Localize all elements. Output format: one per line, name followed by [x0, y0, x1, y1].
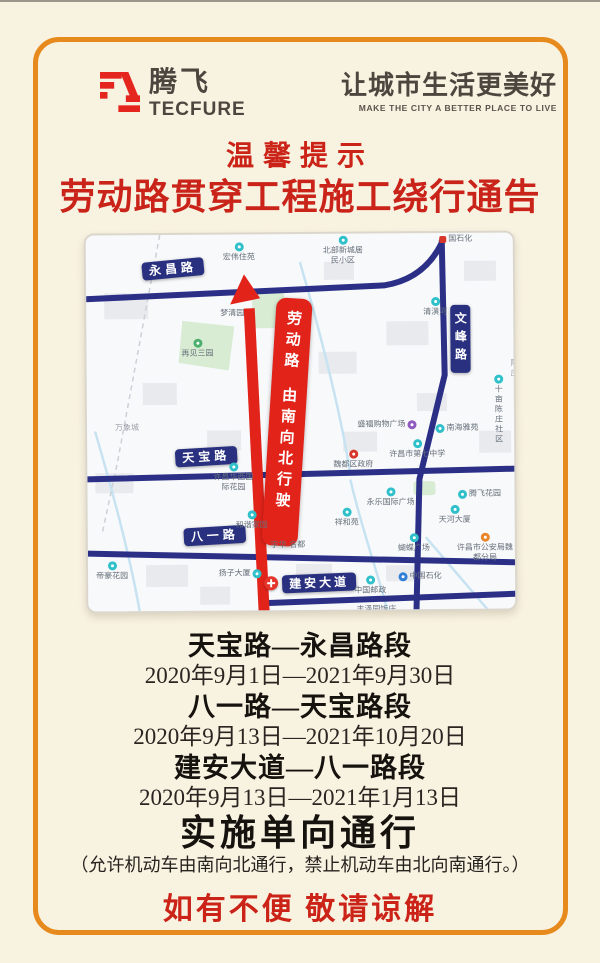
poi-label: 腾飞花园	[469, 489, 501, 499]
poi-label: 帝豪花园	[96, 571, 128, 581]
map-poi: 中国邮政	[354, 575, 386, 595]
policy-headline: 实施单向通行	[0, 804, 600, 856]
poi-label: 北部新城居民小区	[322, 246, 364, 266]
hospital-icon	[264, 576, 278, 590]
poi-label: 祥和苑	[335, 518, 359, 528]
poi-label: 宇华·名都	[270, 540, 305, 550]
poi-label: 十亩陈庄社区	[491, 385, 506, 445]
poi-label: 扬子大厦	[219, 568, 251, 578]
map-poi: 国石化	[439, 234, 472, 244]
map-poi: 北部新城居民小区	[322, 236, 364, 266]
poi-label: 南海雅苑	[447, 423, 479, 433]
apology-line: 如有不便 敬请谅解	[0, 884, 600, 928]
poi-pin-icon	[247, 510, 256, 519]
poi-label: 再见三园	[181, 349, 213, 359]
map-poi: 南海雅苑	[436, 423, 479, 433]
brand-name-en: TECFURE	[149, 100, 246, 119]
notice-poster: 腾飞 TECFURE 让城市生活更美好 MAKE THE CITY A BETT…	[0, 0, 600, 963]
map-poi: 帝豪花园	[96, 561, 128, 581]
poi-label: 中国邮政	[354, 585, 386, 595]
bayi-road-line	[86, 550, 518, 565]
map-poi: 盛福购物广场	[357, 419, 416, 429]
poi-pin-icon	[338, 236, 347, 245]
slogan-en: MAKE THE CITY A BETTER PLACE TO LIVE	[341, 104, 557, 113]
tecfure-logo-icon	[100, 68, 140, 116]
map-poi: 再见三园	[181, 339, 213, 359]
poi-pin-icon	[436, 423, 445, 432]
poi-label: 许昌市第七中学	[389, 449, 445, 459]
poi-label: 和谐家园	[236, 520, 268, 530]
map-poi: 十亩陈庄社区	[491, 375, 506, 445]
poi-label: 许昌华西国际花园	[211, 472, 255, 492]
yongchang-road-line	[86, 243, 442, 300]
brand-logo: 腾飞 TECFURE	[100, 68, 246, 119]
map-poi: 魏都区政府	[333, 449, 373, 469]
route-road-name: 劳动路	[283, 310, 302, 374]
poi-label: 国石化	[448, 234, 472, 244]
poi-pin-icon	[386, 487, 395, 496]
poi-pin-icon	[193, 339, 202, 348]
poi-label: 中国石化	[410, 571, 442, 581]
policy-detail: （允许机动车由南向北通行，禁止机动车由北向南通行。）	[0, 851, 600, 877]
poi-pin-icon	[450, 505, 459, 514]
poi-pin-icon	[229, 462, 238, 471]
poi-pin-icon	[431, 297, 440, 306]
poi-pin-icon	[366, 575, 375, 584]
map-poi: 梦清园	[220, 308, 244, 318]
brand-name-cn: 腾飞	[149, 68, 246, 96]
map-poi: 和谐家园	[236, 510, 268, 530]
poi-pin-icon	[413, 439, 422, 448]
map-poi: 祥和苑	[335, 508, 359, 528]
poi-label: 天河大厦	[439, 515, 471, 525]
map-poi: 许昌市第七中学	[389, 439, 445, 459]
poi-label: 许昌市公安局魏都分局	[457, 543, 513, 563]
poi-pin-icon	[494, 375, 503, 384]
poi-pin-icon	[349, 450, 358, 459]
poi-pin-icon	[399, 572, 408, 581]
slogan-cn: 让城市生活更美好	[341, 72, 557, 98]
badge-jianan-avenue: 建安大道	[282, 572, 357, 593]
poi-pin-icon	[234, 242, 243, 251]
map-poi: 宏伟住苑	[223, 242, 255, 262]
map-poi: 许昌华西国际花园	[211, 462, 255, 492]
poi-label: 宏伟住苑	[223, 252, 255, 262]
map-poi: 腾飞花园	[458, 489, 501, 499]
map-poi: 宇华·名都	[270, 540, 305, 550]
poi-label: 盛福购物广场	[357, 419, 405, 429]
map-poi: 万象城	[115, 423, 139, 433]
brand-wordmark: 腾飞 TECFURE	[149, 68, 246, 119]
poi-pin-icon	[439, 235, 446, 242]
poi-label: 万象城	[115, 423, 139, 433]
route-direction: 由南向北行驶	[274, 387, 297, 514]
poi-pin-icon	[107, 561, 116, 570]
notice-title: 劳动路贯穿工程施工绕行通告	[0, 168, 600, 220]
poi-label: 梦清园	[220, 308, 244, 318]
poi-pin-icon	[458, 489, 467, 498]
poi-label: 永乐国际广场	[367, 497, 415, 507]
map-poi: 清潩河	[423, 297, 447, 317]
top-edge-line	[0, 0, 600, 2]
poi-pin-icon	[342, 508, 351, 517]
poi-pin-icon	[480, 533, 489, 542]
poi-pin-icon	[409, 533, 418, 542]
map-poi: 天河大厦	[439, 505, 471, 525]
poi-label: 魏都区政府	[333, 459, 373, 469]
poi-label: 蝴蝶广场	[398, 543, 430, 553]
poi-pin-icon	[407, 420, 416, 429]
map-poi: 许昌市公安局魏都分局	[457, 533, 513, 563]
poi-pin-icon	[253, 569, 262, 578]
map-poi: 蝴蝶广场	[398, 533, 430, 553]
map-poi: 扬子大厦	[219, 568, 262, 578]
brand-slogan: 让城市生活更美好 MAKE THE CITY A BETTER PLACE TO…	[341, 72, 557, 113]
badge-wenfeng-road: 文峰路	[450, 305, 470, 373]
detour-map: 永昌路 文峰路 天宝路 八一路 建安大道 劳动路 由南向北行驶 宏伟住苑 北部新…	[84, 231, 518, 614]
map-poi: 中国石化	[399, 571, 442, 581]
map-poi: 永乐国际广场	[366, 487, 414, 507]
poi-label: 清潩河	[423, 307, 447, 317]
